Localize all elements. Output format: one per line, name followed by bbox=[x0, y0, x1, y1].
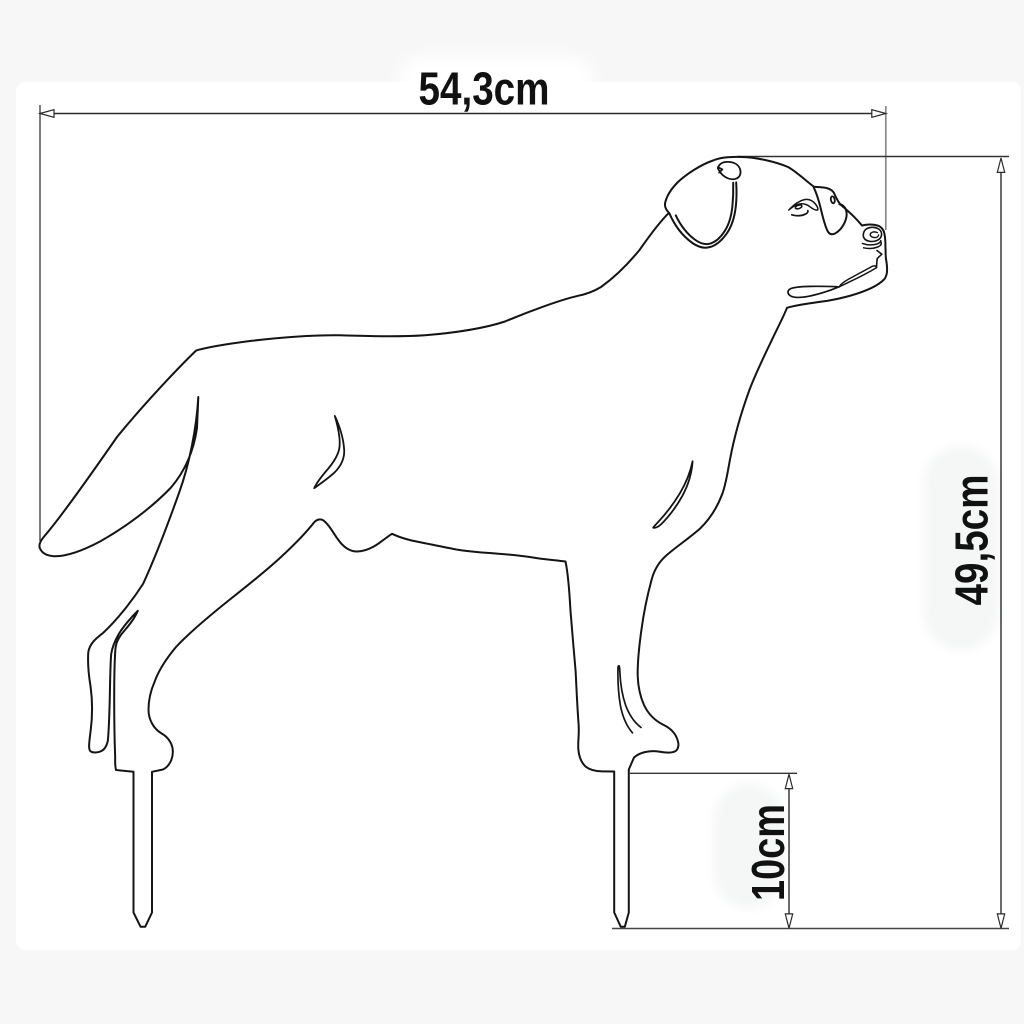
svg-text:54,3cm: 54,3cm bbox=[419, 63, 550, 115]
svg-text:49,5cm: 49,5cm bbox=[945, 475, 997, 606]
svg-text:10cm: 10cm bbox=[742, 804, 794, 901]
